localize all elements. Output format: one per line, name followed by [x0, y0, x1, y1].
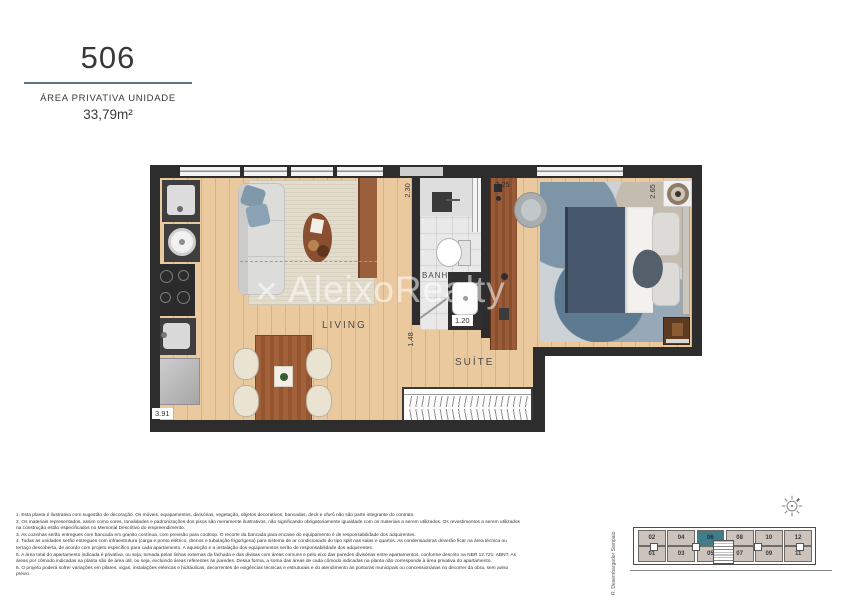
keyplan-notch — [650, 543, 658, 551]
kitchen-sink-2 — [158, 318, 196, 355]
wall-right — [692, 165, 702, 356]
round-chair — [514, 192, 548, 228]
private-area-label: ÁREA PRIVATIVA UNIDADE — [20, 93, 196, 104]
faucet — [177, 206, 183, 212]
watermark: ✕AleixoRealty — [254, 269, 614, 311]
hangers-row — [406, 409, 529, 420]
dim-bath-height: 2.30 — [403, 183, 412, 198]
private-area-value: 33,79m² — [20, 107, 196, 122]
side-table-decor — [672, 323, 683, 336]
keyplan-notch — [754, 543, 762, 551]
glass-line — [477, 178, 478, 232]
window-suite — [537, 167, 623, 176]
label-suite: SUÍTE — [455, 357, 494, 368]
keyplan-stair-core — [713, 540, 734, 564]
side-table — [663, 317, 690, 345]
unit-header: 506 ÁREA PRIVATIVA UNIDADE 33,79m² — [20, 40, 196, 122]
disclaimer-notes: 1. Esta planta é ilustrativa com sugestã… — [16, 513, 520, 579]
burner — [178, 270, 189, 281]
unit-number: 506 — [20, 40, 196, 76]
table-centerpiece — [274, 366, 293, 387]
wall-bottom-right — [533, 347, 702, 356]
dim-suite-depth: 2.65 — [648, 184, 657, 199]
disclaimer-note-2Osma: 2. Os materiais representados, assim com… — [16, 520, 520, 533]
burner — [160, 270, 173, 283]
dining-chair — [306, 385, 332, 417]
dining-table — [255, 335, 312, 424]
keyplan-notch — [692, 543, 700, 551]
dining-chair — [233, 348, 259, 380]
sofa-cushion-line — [248, 256, 284, 257]
keyplan-unit-03: 03 — [667, 546, 695, 562]
street-label: R. Desembargador Sampaio — [611, 515, 617, 595]
disclaimer-note-1Esta: 1. Esta planta é ilustrativa com sugestã… — [16, 513, 520, 520]
wardrobe — [402, 387, 533, 423]
pillow — [652, 212, 680, 256]
keyplan-unit-04: 04 — [667, 530, 695, 546]
dim-kitchen-width: 3.91 — [152, 408, 173, 419]
window-mullion — [333, 167, 337, 176]
compass-icon — [779, 493, 805, 519]
disclaimer-note-5Are: 5. A área total do apartamento indicada … — [16, 553, 520, 566]
sink-basin — [163, 323, 190, 349]
wall-bathroom-right — [481, 178, 490, 338]
dim-living-width: 3.90 — [193, 186, 202, 201]
washing-machine — [164, 224, 200, 262]
hangers-row — [406, 396, 529, 407]
dim-closet-width: 3.25 — [495, 180, 510, 189]
wall-step — [533, 347, 545, 432]
shower-glass — [472, 178, 481, 232]
round-chair-seat — [521, 199, 541, 221]
disclaimer-note-4Todas: 4. Todas as unidades serão entregues com… — [16, 539, 520, 552]
decor-tray — [667, 183, 689, 205]
dining-chair — [233, 385, 259, 417]
burner — [160, 292, 171, 303]
shower-arm — [446, 199, 460, 201]
tray-center — [675, 191, 681, 197]
ceiling-projection-line — [240, 261, 377, 262]
headboard — [682, 205, 690, 315]
floorplan-page: { "header": { "unit_number": "506", "are… — [0, 0, 848, 600]
toilet-bowl — [436, 238, 462, 267]
wardrobe-rod — [404, 394, 531, 395]
dim-bath-door: 1.48 — [406, 332, 415, 347]
dim-vanity-width: 1.20 — [452, 315, 473, 326]
plant — [280, 373, 288, 381]
wall-bottom-left — [150, 420, 545, 432]
sofa-pillow — [245, 203, 271, 228]
window-bathroom — [400, 167, 443, 176]
brand-logo-icon: ✕ — [254, 276, 280, 309]
header-rule — [24, 82, 192, 84]
disclaimer-note-6Opro: 6. O projeto poderá sofrer variações em … — [16, 566, 520, 579]
burner — [177, 291, 190, 304]
shower-column — [432, 192, 452, 212]
keyplan-notch — [796, 543, 804, 551]
side-table-label — [666, 339, 689, 343]
tv-console — [358, 178, 377, 278]
washer-door — [179, 239, 185, 245]
suite-closet — [490, 178, 517, 350]
wall-left — [150, 165, 160, 432]
keyplan: 020406081012 010305070911 — [633, 527, 816, 565]
floor-plan: LIVING BANH. SUÍTE 3.90 3.91 2.30 1.20 1… — [150, 165, 702, 432]
coffee-table-book — [310, 218, 324, 234]
cooktop — [155, 264, 195, 316]
kitchen-counter — [155, 358, 200, 405]
coffee-table-bowl — [317, 245, 329, 257]
window-mullion — [287, 167, 291, 176]
closet-knob — [496, 196, 501, 201]
street-line — [630, 570, 832, 571]
nightstand — [663, 180, 692, 207]
dining-chair — [306, 348, 332, 380]
coffee-table — [303, 213, 332, 262]
label-living: LIVING — [322, 320, 367, 331]
faucet — [161, 332, 167, 338]
window-living — [180, 167, 383, 176]
window-mullion — [240, 167, 244, 176]
brand-name: AleixoRealty — [288, 269, 506, 310]
